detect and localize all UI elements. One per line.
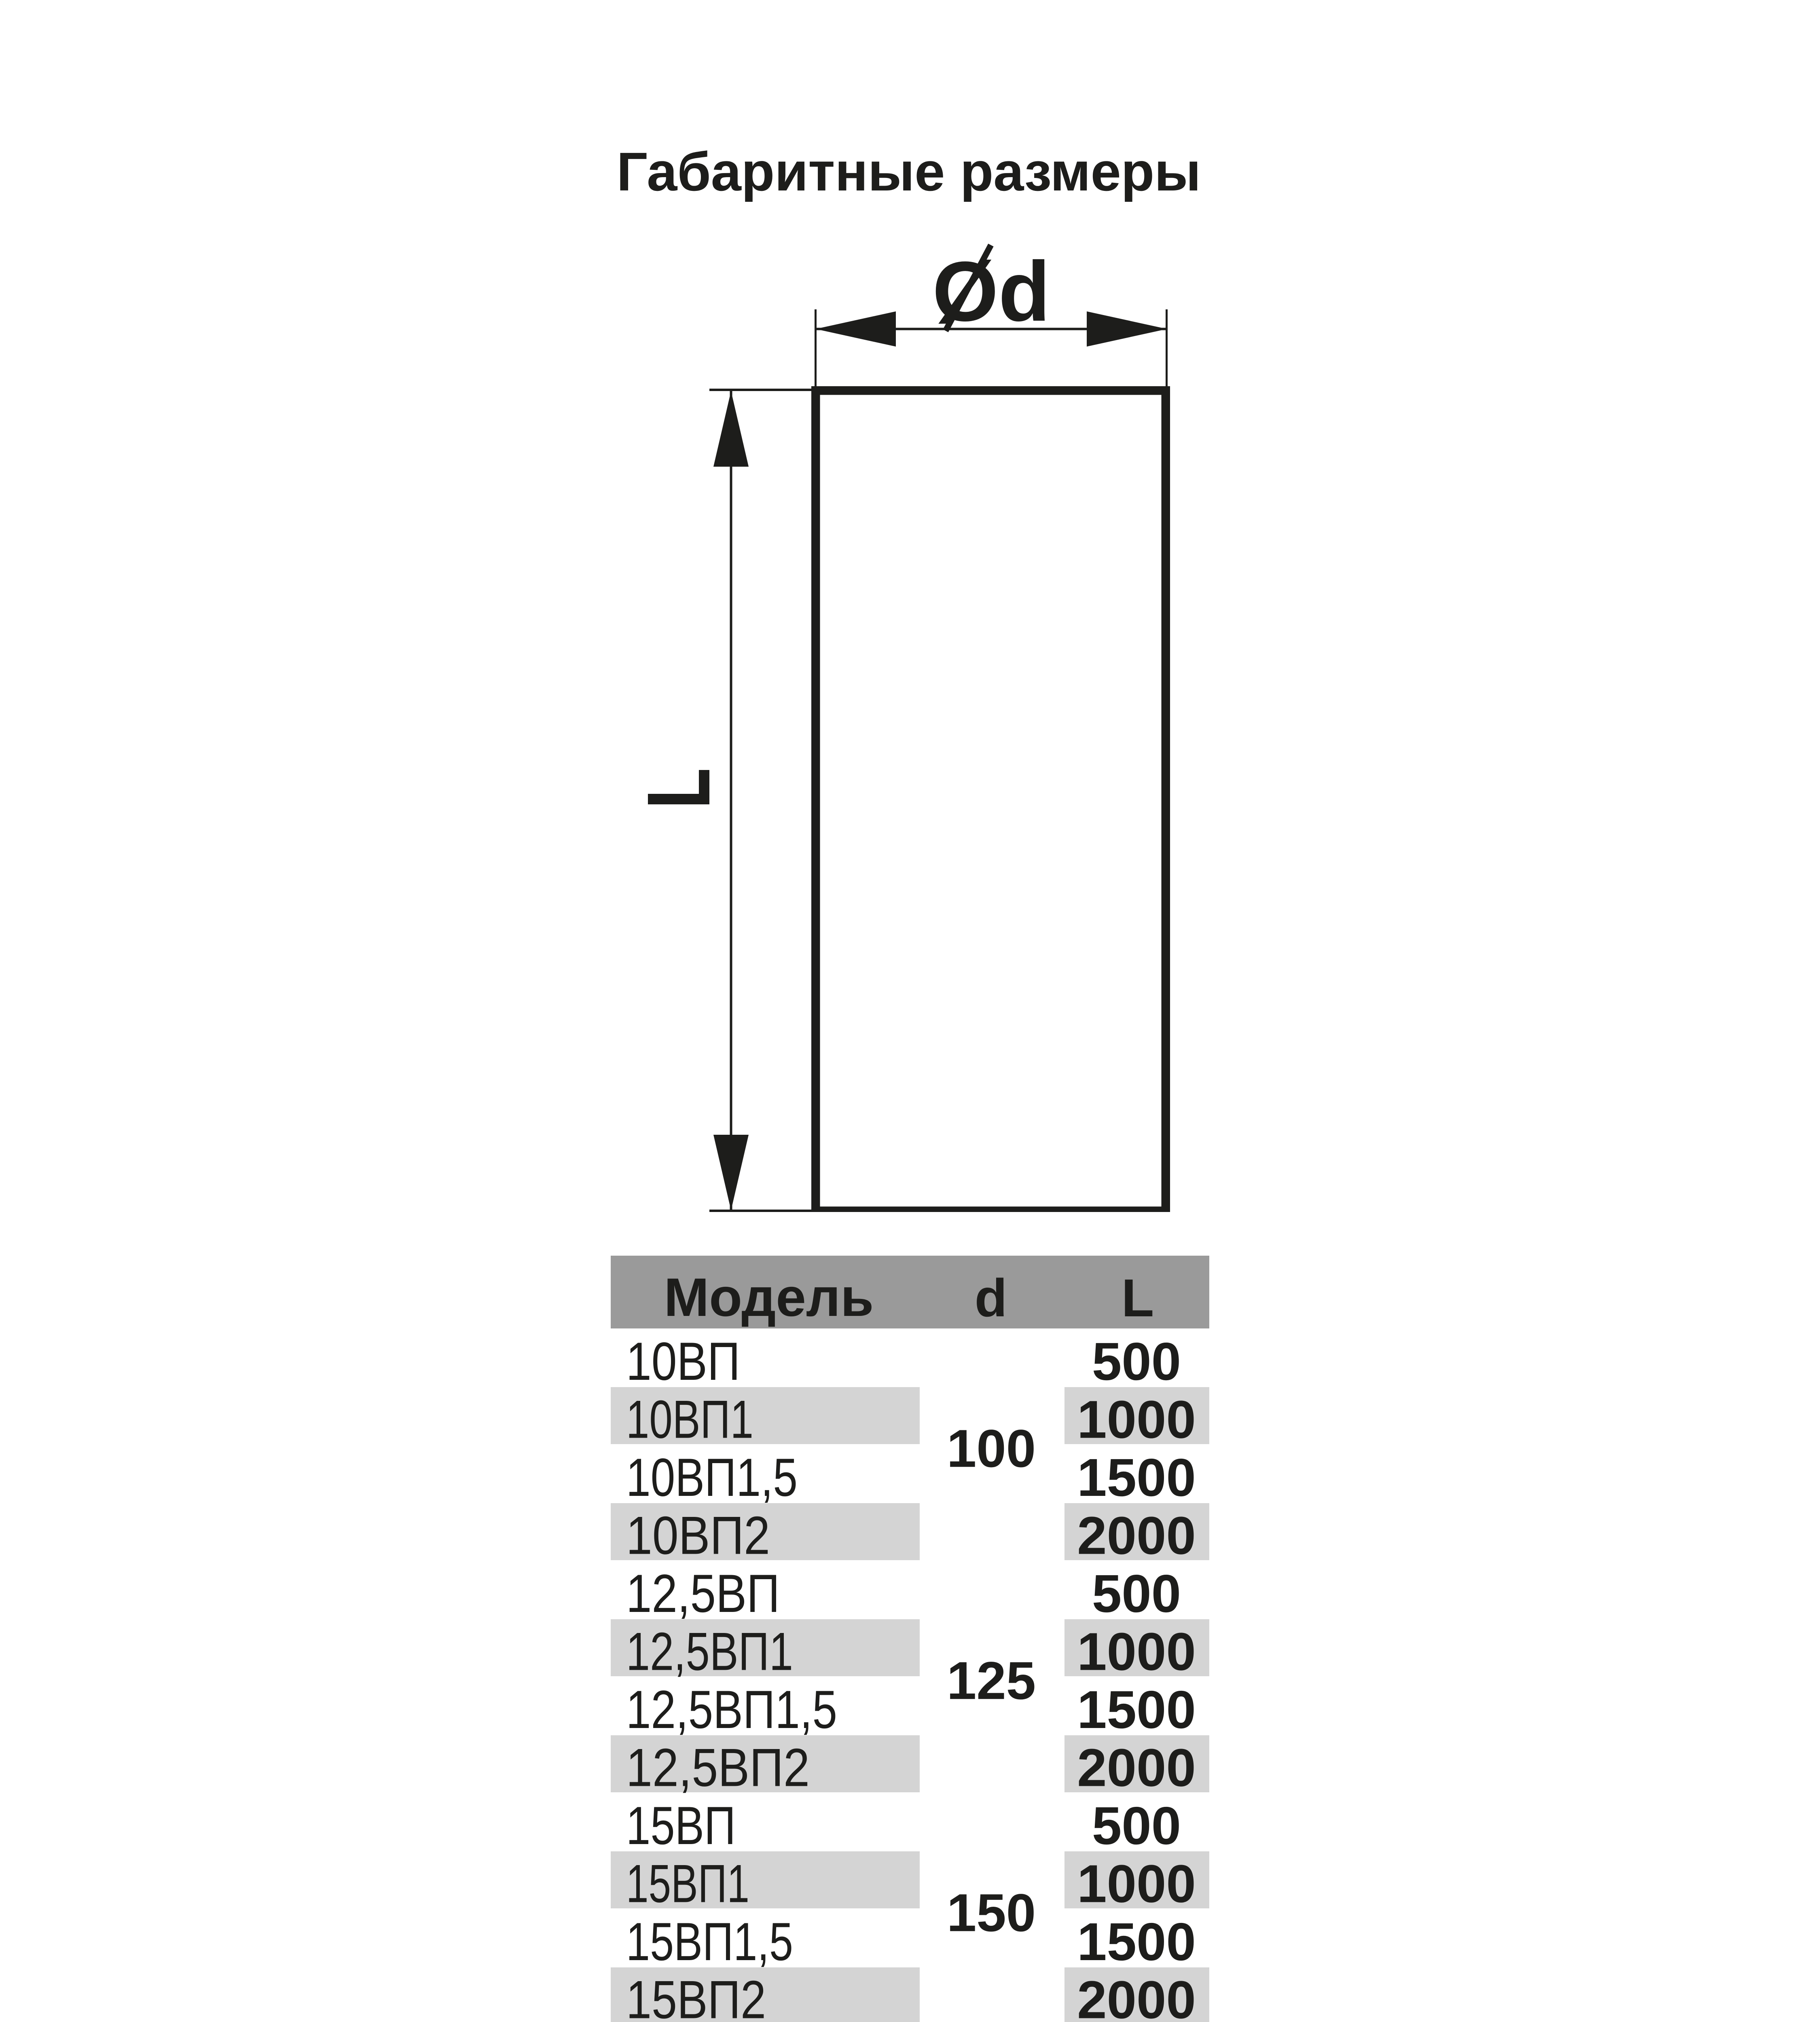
- svg-text:d: d: [975, 1268, 1007, 1328]
- svg-text:1000: 1000: [1077, 1390, 1196, 1449]
- svg-text:500: 500: [1092, 1796, 1181, 1855]
- svg-text:1000: 1000: [1077, 1622, 1196, 1681]
- svg-text:10ВП1,5: 10ВП1,5: [626, 1448, 798, 1508]
- svg-text:2000: 2000: [1077, 1506, 1196, 1565]
- svg-text:1000: 1000: [1077, 1854, 1196, 1914]
- svg-text:2000: 2000: [1077, 1970, 1196, 2022]
- svg-text:1500: 1500: [1077, 1912, 1196, 1971]
- svg-text:500: 500: [1092, 1332, 1181, 1391]
- svg-text:2000: 2000: [1077, 1738, 1196, 1798]
- svg-text:125: 125: [947, 1651, 1036, 1710]
- svg-text:15ВП1,5: 15ВП1,5: [626, 1912, 793, 1972]
- svg-text:12,5ВП1: 12,5ВП1: [626, 1622, 793, 1682]
- svg-text:15ВП: 15ВП: [626, 1796, 736, 1856]
- svg-text:12,5ВП1,5: 12,5ВП1,5: [626, 1680, 837, 1740]
- svg-text:150: 150: [947, 1883, 1036, 1942]
- svg-text:Габаритные размеры: Габаритные размеры: [617, 141, 1201, 202]
- svg-text:15ВП1: 15ВП1: [626, 1854, 749, 1914]
- svg-text:Модель: Модель: [664, 1267, 874, 1328]
- svg-text:1500: 1500: [1077, 1680, 1196, 1739]
- svg-text:100: 100: [947, 1419, 1036, 1478]
- svg-text:10ВП2: 10ВП2: [626, 1506, 770, 1566]
- svg-text:L: L: [1122, 1268, 1154, 1328]
- svg-text:500: 500: [1092, 1564, 1181, 1623]
- svg-text:10ВП1: 10ВП1: [626, 1390, 753, 1450]
- svg-text:15ВП2: 15ВП2: [626, 1970, 766, 2022]
- svg-text:12,5ВП: 12,5ВП: [626, 1564, 780, 1624]
- svg-text:10ВП: 10ВП: [626, 1332, 740, 1392]
- svg-text:1500: 1500: [1077, 1448, 1196, 1507]
- svg-text:12,5ВП2: 12,5ВП2: [626, 1738, 810, 1798]
